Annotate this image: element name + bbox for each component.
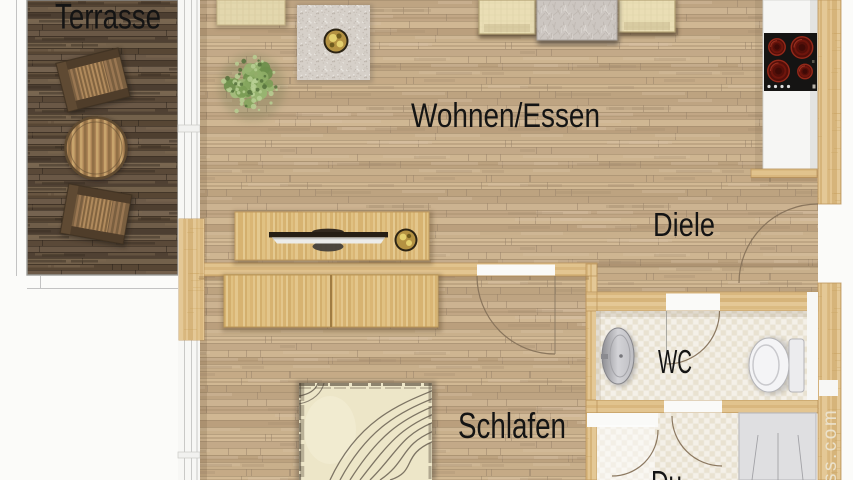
svg-text:WC: WC bbox=[658, 343, 692, 380]
svg-text:ss.com: ss.com bbox=[820, 408, 841, 480]
svg-text:Wohnen/Essen: Wohnen/Essen bbox=[411, 97, 600, 135]
svg-text:Schlafen: Schlafen bbox=[458, 405, 566, 446]
svg-text:Diele: Diele bbox=[653, 206, 715, 243]
svg-text:Du: Du bbox=[651, 464, 682, 480]
svg-text:Terrasse: Terrasse bbox=[55, 0, 161, 37]
